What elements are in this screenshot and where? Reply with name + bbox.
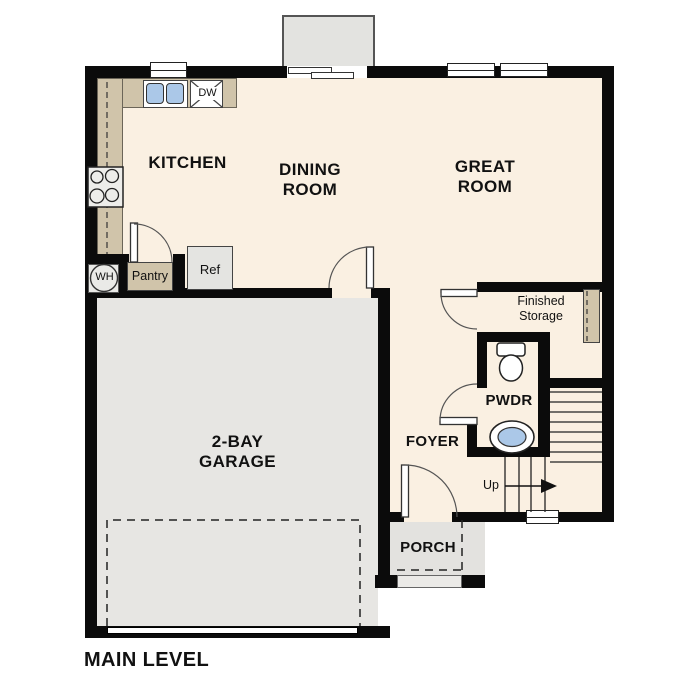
room-label-foyer: FOYER <box>400 433 465 451</box>
label-dw: DW <box>196 87 219 100</box>
sliding-door-panel-2 <box>311 72 354 79</box>
label-up: Up <box>478 478 504 493</box>
wall-pantry-right <box>173 254 185 293</box>
great-room-window-2 <box>500 63 548 77</box>
sink-basin-right-icon <box>166 83 184 104</box>
exterior-bump-out <box>282 15 375 70</box>
room-label-finished-storage: Finished Storage <box>505 294 577 324</box>
wall-stairs-top <box>545 378 602 388</box>
room-label-porch: PORCH <box>393 539 463 557</box>
porch-stub-left <box>375 575 397 588</box>
room-label-garage: 2-BAY GARAGE <box>180 432 295 473</box>
room-label-dining: DINING ROOM <box>255 160 365 201</box>
room-label-powder: PWDR <box>478 392 540 410</box>
wall-right <box>602 66 614 522</box>
room-label-great: GREAT ROOM <box>430 157 540 198</box>
sink-basin-left-icon <box>146 83 164 104</box>
wall-pwdr-left-upper <box>477 332 487 388</box>
floor-plan: KITCHEN DINING ROOM GREAT ROOM 2-BAY GAR… <box>0 0 687 687</box>
porch-step <box>397 575 462 588</box>
stair-landing-window <box>526 510 559 524</box>
garage-overhead-door <box>107 627 358 634</box>
label-pantry: Pantry <box>127 269 173 284</box>
wall-left <box>85 66 97 638</box>
kitchen-window <box>150 62 187 78</box>
garage-interior-door-opening <box>332 288 371 298</box>
closet-strip <box>583 289 600 343</box>
wall-pwdr-bottom <box>467 447 550 457</box>
room-label-kitchen: KITCHEN <box>130 153 245 173</box>
kitchen-sink <box>143 80 188 108</box>
label-ref: Ref <box>187 262 233 278</box>
porch-stub-right <box>462 575 485 588</box>
front-door-opening <box>404 512 452 522</box>
kitchen-counter-left <box>97 78 123 256</box>
plan-title: MAIN LEVEL <box>84 648 304 672</box>
wall-garage-right <box>378 288 390 588</box>
great-room-window-1 <box>447 63 495 77</box>
label-wh: WH <box>90 271 119 284</box>
